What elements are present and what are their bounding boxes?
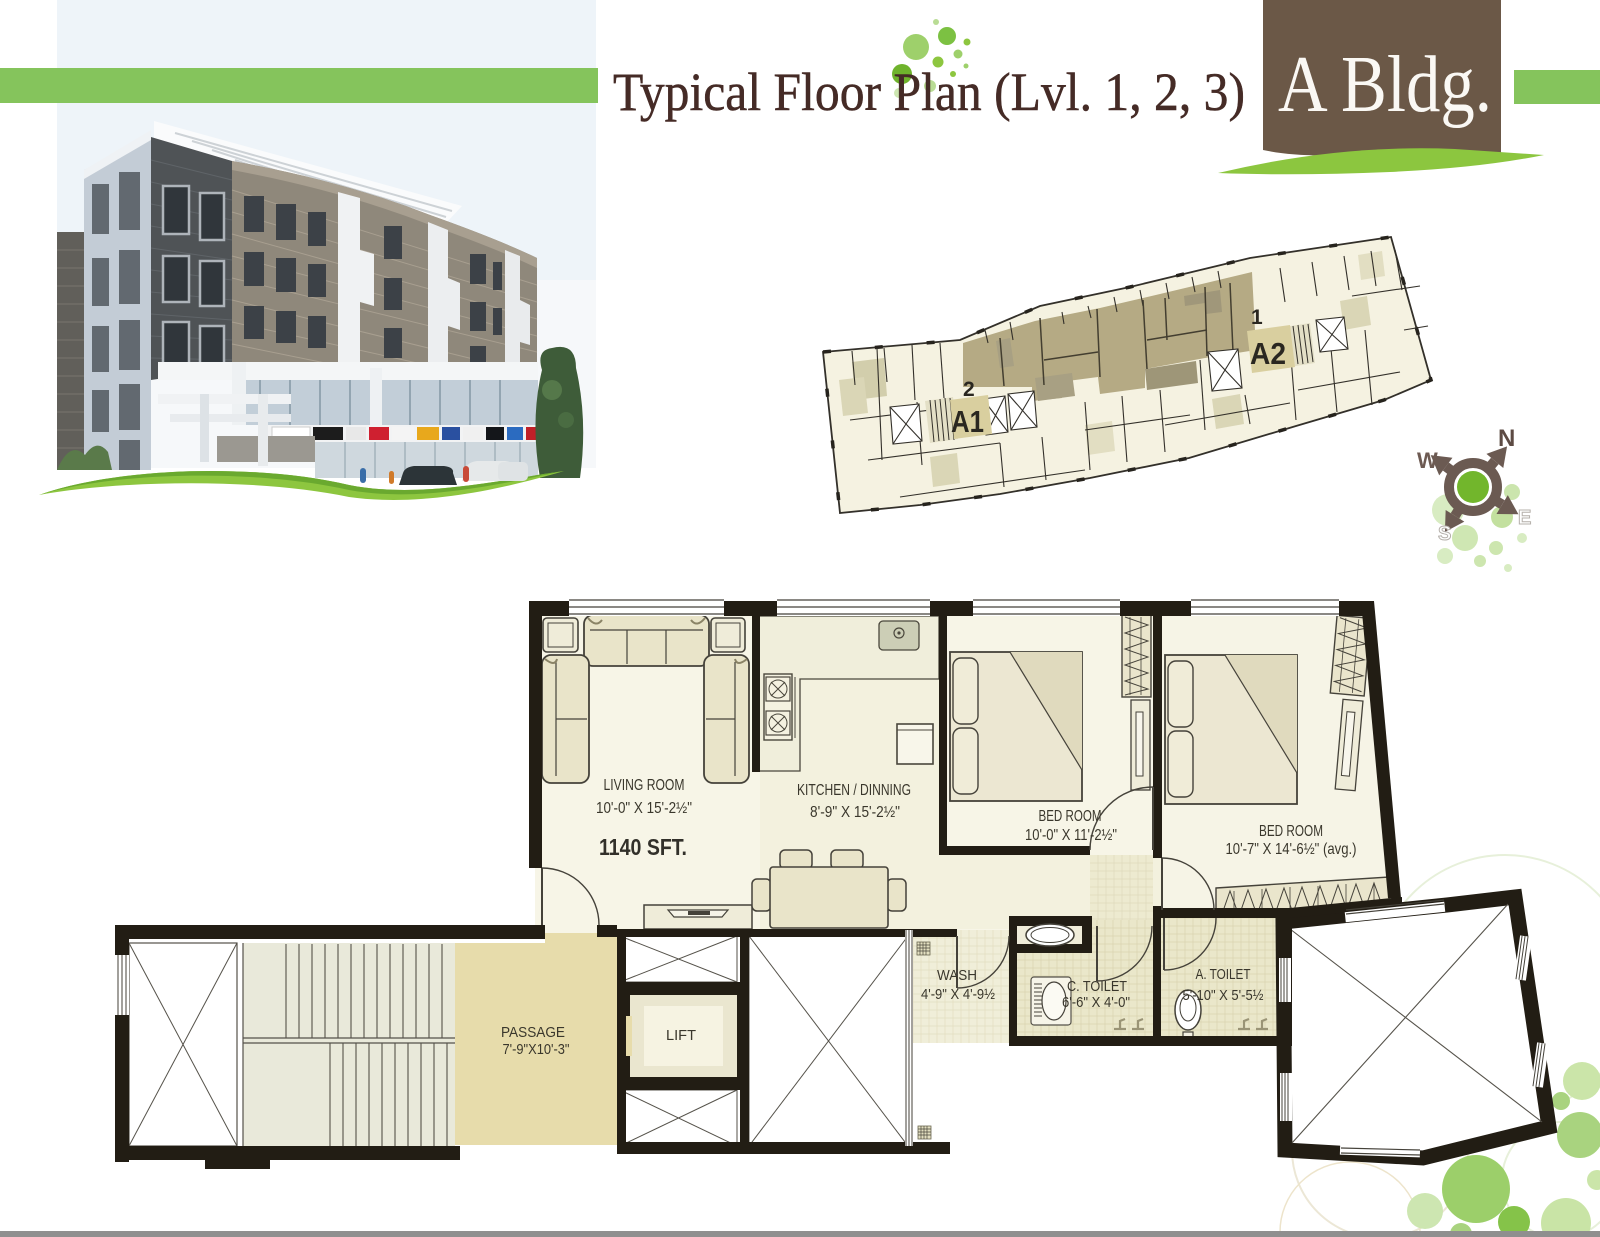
svg-text:BED ROOM: BED ROOM	[1259, 823, 1323, 840]
svg-text:Typical Floor Plan (Lvl. 1, 2,: Typical Floor Plan (Lvl. 1, 2, 3)	[613, 62, 1245, 122]
svg-text:WASH: WASH	[937, 967, 977, 984]
svg-text:4'-9" X 4'-9½: 4'-9" X 4'-9½	[921, 986, 995, 1003]
svg-text:10'-0" X 11'-2½": 10'-0" X 11'-2½"	[1025, 827, 1117, 844]
svg-text:E: E	[1518, 507, 1531, 529]
svg-text:BED ROOM: BED ROOM	[1039, 808, 1102, 825]
svg-text:KITCHEN / DINNING: KITCHEN / DINNING	[797, 782, 911, 799]
svg-text:LIFT: LIFT	[666, 1027, 696, 1044]
svg-text:10'-7" X 14'-6½" (avg.): 10'-7" X 14'-6½" (avg.)	[1226, 841, 1357, 858]
svg-text:7'-9"X10'-3": 7'-9"X10'-3"	[503, 1041, 570, 1058]
svg-text:A. TOILET: A. TOILET	[1196, 966, 1251, 983]
svg-text:PASSAGE: PASSAGE	[501, 1024, 565, 1041]
svg-text:5'-10" X 5'-5½: 5'-10" X 5'-5½	[1183, 987, 1264, 1004]
svg-text:S: S	[1438, 523, 1451, 545]
svg-text:1: 1	[1251, 306, 1263, 329]
svg-text:LIVING ROOM: LIVING ROOM	[604, 777, 685, 794]
svg-text:C. TOILET: C. TOILET	[1067, 978, 1127, 995]
svg-text:2: 2	[963, 378, 975, 401]
svg-text:A2: A2	[1250, 336, 1286, 371]
svg-text:1140 SFT.: 1140 SFT.	[599, 834, 687, 860]
svg-text:N: N	[1498, 425, 1515, 452]
svg-text:10'-0" X 15'-2½": 10'-0" X 15'-2½"	[596, 800, 692, 817]
svg-text:A Bldg.: A Bldg.	[1278, 41, 1492, 129]
svg-text:W: W	[1417, 448, 1438, 473]
svg-text:A1: A1	[951, 404, 984, 439]
svg-text:6'-6" X 4'-0": 6'-6" X 4'-0"	[1062, 994, 1130, 1011]
svg-text:8'-9" X 15'-2½": 8'-9" X 15'-2½"	[810, 804, 900, 821]
